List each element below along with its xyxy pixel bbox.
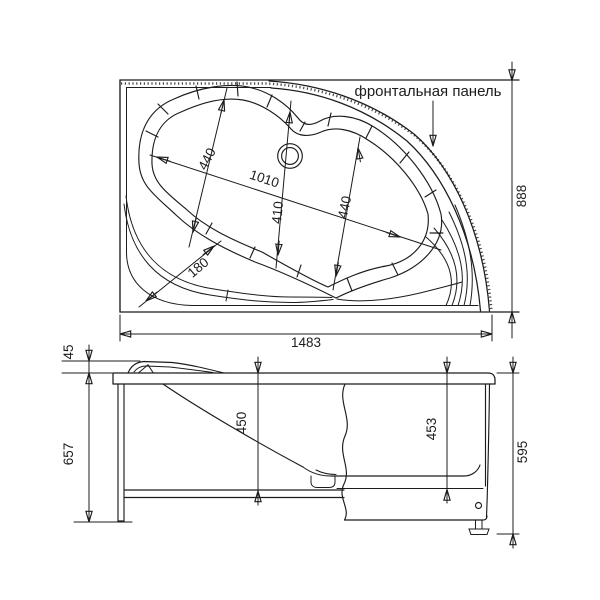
dim-overall-width: 1483 (291, 335, 321, 350)
dim-bowl-width-foot: 440 (335, 194, 354, 219)
side-view-dimensions: 45 657 450 453 595 (61, 344, 530, 548)
dim-inner-depth: 450 (234, 412, 249, 435)
adjustable-foot (469, 520, 489, 535)
panel-screw-hole (476, 503, 482, 509)
front-panel-side (342, 384, 489, 535)
support-frame (118, 384, 344, 521)
dim-seat-width: 180 (185, 255, 212, 281)
rim-profile (113, 373, 495, 384)
drain-trap (311, 476, 335, 488)
drain (278, 144, 303, 169)
headrest-profile (128, 362, 224, 374)
dim-bowl-length: 1010 (248, 167, 281, 191)
technical-drawing-page: фронтальная панель 888 1483 440 1010 (0, 0, 600, 600)
seat-curves (124, 196, 462, 303)
side-view: 45 657 450 453 595 (61, 344, 530, 548)
break-line-wavy (342, 384, 347, 520)
dim-overall-depth: 888 (514, 185, 529, 208)
corner-steps (426, 205, 472, 306)
top-view: фронтальная панель 888 1483 440 1010 (120, 62, 529, 350)
frontal-panel-label: фронтальная панель (355, 83, 502, 100)
top-view-dimensions: фронтальная панель 888 1483 440 1010 (120, 62, 529, 350)
dim-overall-height-with-panel: 595 (515, 441, 530, 464)
dim-bowl-width-head: 440 (195, 146, 219, 173)
bathtub-technical-drawing: фронтальная панель 888 1483 440 1010 (0, 0, 600, 600)
bowl-outline (139, 86, 442, 299)
dim-frame-height: 657 (61, 443, 76, 466)
dim-bowl-width-middle: 410 (269, 201, 286, 225)
dim-headrest-height: 45 (61, 344, 76, 359)
dim-panel-height: 453 (424, 418, 439, 441)
